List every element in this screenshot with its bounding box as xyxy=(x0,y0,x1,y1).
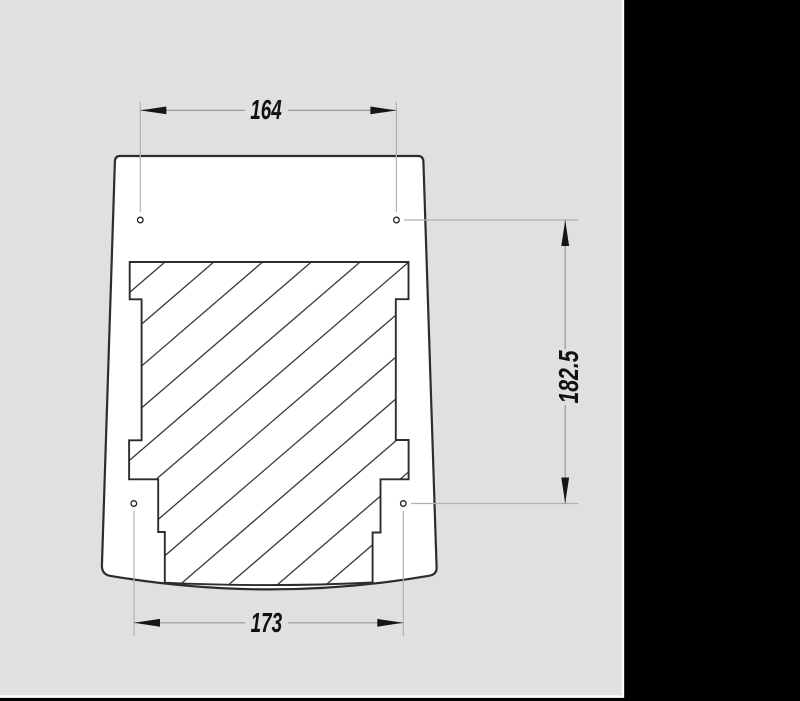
svg-text:173: 173 xyxy=(251,607,283,638)
svg-text:182.5: 182.5 xyxy=(553,350,584,403)
svg-text:164: 164 xyxy=(250,94,282,125)
